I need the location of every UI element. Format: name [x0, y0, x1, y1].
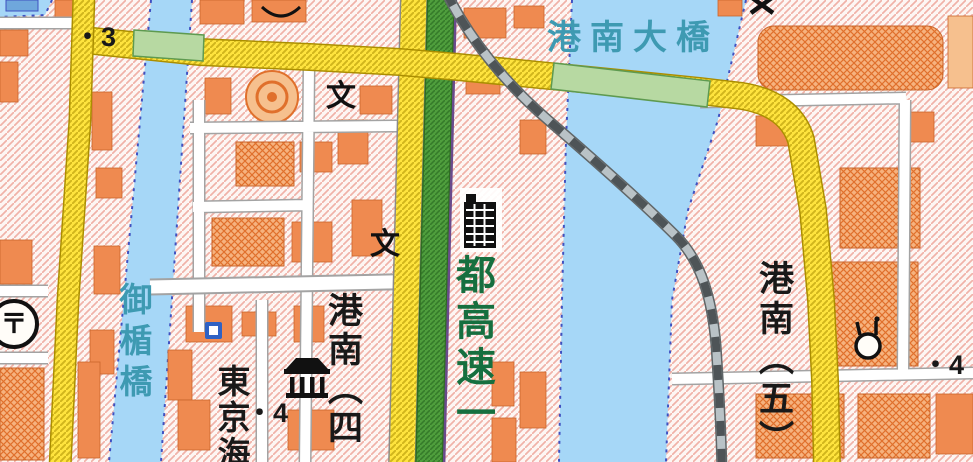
post-office-icon — [0, 301, 37, 347]
highrise-building-icon — [460, 188, 502, 252]
map-base-layer — [0, 0, 973, 462]
pier-structure — [6, 0, 38, 11]
bridge-mitate — [133, 30, 204, 61]
blue-facility-icon-inner — [209, 326, 218, 335]
map-canvas[interactable]: 港南大橋 御楯橋 都高速一 港南（四 港南（五） 東京海 ・3 ・4 ・4 文 … — [0, 0, 973, 462]
